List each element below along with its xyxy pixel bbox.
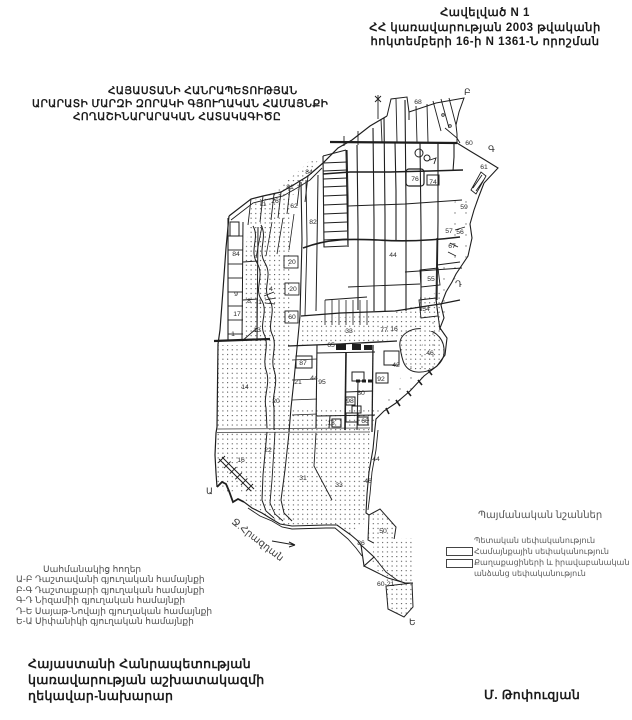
svg-text:87: 87	[299, 360, 307, 367]
svg-text:59: 59	[460, 204, 468, 211]
svg-text:77: 77	[380, 327, 388, 334]
svg-text:74: 74	[429, 179, 437, 186]
svg-text:16: 16	[390, 326, 398, 333]
svg-text:13: 13	[253, 327, 261, 334]
svg-text:60: 60	[465, 140, 473, 147]
svg-text:31: 31	[299, 475, 307, 482]
svg-text:82: 82	[309, 219, 317, 226]
svg-text:Ե: Ե	[409, 617, 416, 627]
svg-text:60: 60	[288, 314, 296, 321]
svg-text:44: 44	[310, 375, 318, 382]
svg-text:81: 81	[286, 184, 294, 191]
svg-text:76: 76	[411, 176, 419, 183]
svg-text:20: 20	[288, 259, 296, 266]
svg-text:26: 26	[271, 198, 279, 205]
svg-text:4: 4	[269, 286, 273, 293]
svg-text:57: 57	[445, 228, 453, 235]
svg-text:21: 21	[294, 379, 302, 386]
svg-text:Դ: Դ	[455, 279, 462, 289]
svg-text:86: 86	[357, 540, 365, 547]
svg-text:66: 66	[361, 418, 369, 425]
svg-text:20: 20	[272, 398, 280, 405]
svg-text:65: 65	[327, 342, 335, 349]
svg-text:80: 80	[357, 390, 365, 397]
svg-text:84: 84	[305, 169, 313, 176]
svg-text:33: 33	[335, 482, 343, 489]
svg-text:44: 44	[389, 252, 397, 259]
svg-text:84: 84	[232, 251, 240, 258]
svg-text:46: 46	[364, 478, 372, 485]
svg-text:14: 14	[241, 384, 249, 391]
svg-text:16: 16	[237, 457, 245, 464]
svg-text:50: 50	[379, 528, 387, 535]
svg-text:Բ: Բ	[464, 87, 471, 97]
svg-text:11: 11	[259, 201, 266, 208]
svg-text:1: 1	[258, 299, 262, 306]
svg-text:92: 92	[377, 376, 385, 383]
svg-text:18: 18	[327, 420, 335, 427]
svg-text:46: 46	[426, 350, 434, 357]
svg-text:20: 20	[289, 286, 297, 293]
svg-text:9: 9	[234, 291, 238, 298]
svg-text:67: 67	[448, 243, 456, 250]
svg-text:8: 8	[247, 298, 251, 305]
svg-text:42: 42	[392, 362, 400, 369]
svg-text:33: 33	[345, 328, 353, 335]
svg-text:54: 54	[422, 306, 430, 313]
svg-text:60-21: 60-21	[377, 581, 395, 588]
svg-text:17: 17	[233, 311, 241, 318]
svg-text:1: 1	[231, 331, 235, 338]
svg-text:55: 55	[427, 276, 435, 283]
svg-text:22: 22	[264, 447, 272, 454]
svg-text:98: 98	[346, 398, 354, 405]
svg-text:62: 62	[290, 203, 298, 210]
svg-text:95: 95	[318, 379, 326, 386]
svg-text:Գ: Գ	[488, 144, 495, 154]
svg-text:Ա: Ա	[206, 486, 213, 496]
svg-text:44: 44	[372, 456, 380, 463]
svg-text:61: 61	[480, 164, 488, 171]
svg-text:68: 68	[414, 99, 422, 106]
svg-text:56: 56	[456, 229, 464, 236]
